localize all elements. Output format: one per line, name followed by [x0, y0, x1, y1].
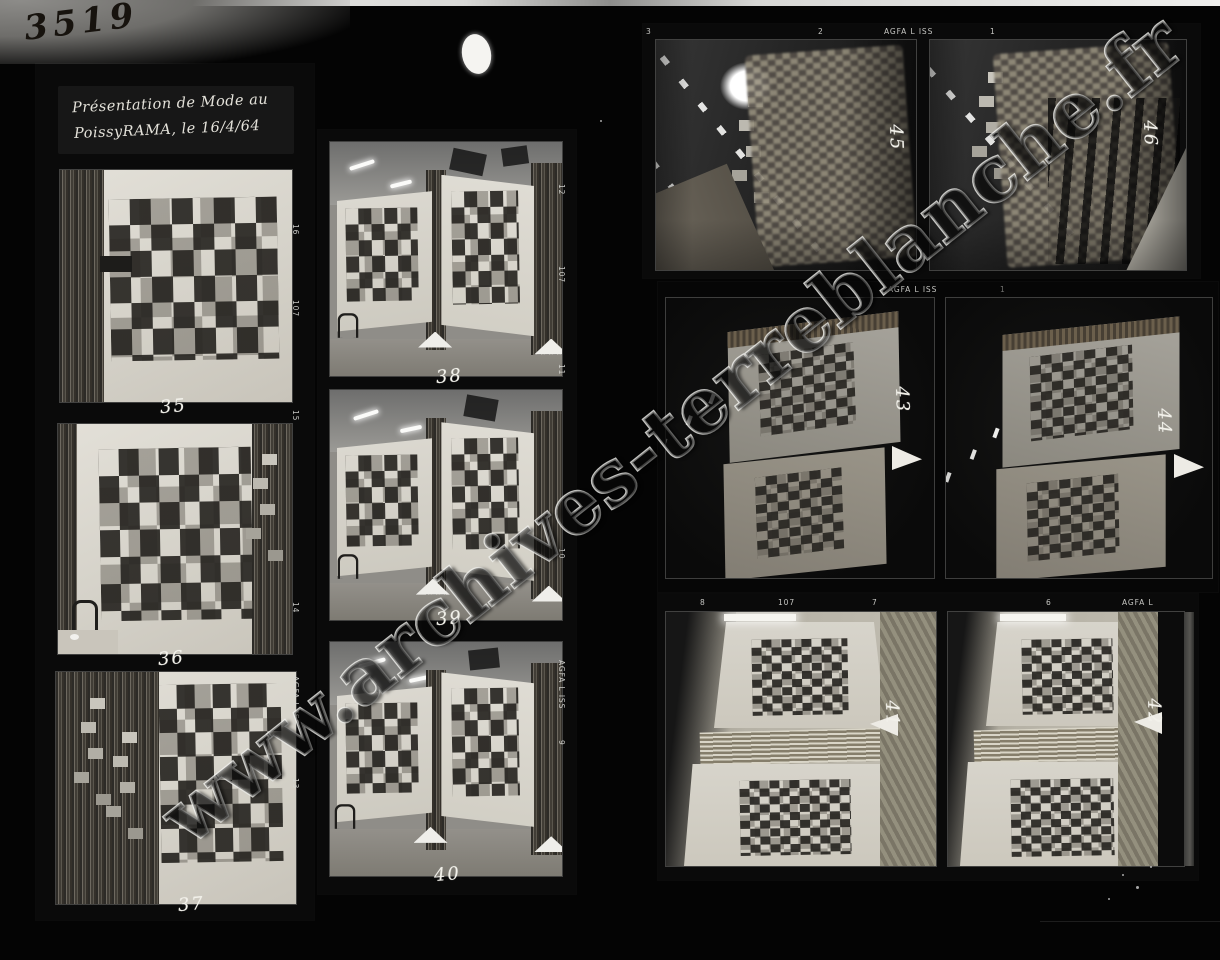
- film-edge-bar: [1184, 612, 1194, 866]
- frame-45: [656, 40, 916, 270]
- curtain: [531, 411, 562, 600]
- carpet: [880, 612, 936, 866]
- edge-marking: 107: [292, 300, 300, 317]
- dust-speck: [1122, 874, 1124, 876]
- pinned-photos: [122, 732, 137, 743]
- frame-37-number: 37: [177, 893, 206, 916]
- photo-cluster: [346, 207, 420, 301]
- frame-44: [946, 298, 1212, 578]
- edge-marking: 15: [292, 410, 300, 421]
- panel-top-bar: [728, 311, 899, 348]
- display-panel: [1002, 316, 1179, 467]
- chair-silhouette: [335, 804, 356, 829]
- cup: [70, 634, 79, 640]
- edge-marking: AGFA L ISS: [884, 28, 933, 36]
- display-panel: [723, 447, 886, 578]
- pinned-photos: [262, 454, 277, 465]
- panel-foot: [1174, 454, 1204, 478]
- edge-marking: 7: [872, 599, 878, 607]
- caption-line-1: Présentation de Mode au: [72, 92, 269, 117]
- pinned-photos: [90, 698, 105, 709]
- frame-41-number: 41: [881, 700, 903, 728]
- lighting-truss: [501, 145, 529, 166]
- panel-foot: [892, 446, 922, 470]
- edge-marking: AGFA L ISS: [292, 676, 300, 725]
- edge-marking: 107: [778, 599, 795, 607]
- edge-marking: 12: [558, 184, 566, 195]
- frame-46: [930, 40, 1186, 270]
- frame-36: [58, 424, 292, 654]
- frame-42-number: 42: [1143, 698, 1165, 726]
- lighting-truss: [468, 648, 500, 671]
- exhibit-panel-right: [441, 175, 534, 336]
- frame-38-number: 38: [435, 365, 464, 388]
- frame-39: [330, 390, 562, 620]
- caption-card: Présentation de Mode au PoissyRAMA, le 1…: [58, 86, 294, 154]
- table-corner: [58, 630, 118, 654]
- frame-43-number: 43: [891, 386, 913, 414]
- edge-marking: AGFA L: [1122, 599, 1154, 607]
- frame-40-number: 40: [433, 863, 462, 886]
- display-panel: [684, 764, 898, 866]
- light-dashes: [708, 394, 715, 405]
- edge-marking: 1: [1000, 286, 1006, 294]
- photo-cluster: [1021, 638, 1113, 714]
- edge-marking: 10: [558, 548, 566, 559]
- edge-marking: 14: [292, 602, 300, 613]
- photo-cluster: [452, 687, 521, 796]
- display-panel: [728, 311, 901, 463]
- frame-45-number: 45: [885, 124, 907, 152]
- photo-cluster: [1030, 344, 1134, 441]
- dust-speck: [1108, 898, 1110, 900]
- edge-marking: 1: [990, 28, 996, 36]
- carpet: [1118, 612, 1160, 866]
- frame-41: [666, 612, 936, 866]
- edge-marking: 107: [558, 266, 566, 283]
- photo-cluster: [758, 342, 856, 436]
- photo-cluster: [755, 467, 845, 559]
- photo-cluster: [99, 447, 254, 622]
- exhibit-panel-left: [337, 686, 432, 822]
- chair-silhouette: [72, 600, 98, 631]
- exhibit-panel-right: [441, 672, 534, 826]
- ceiling-light: [724, 614, 796, 621]
- curtain: [60, 170, 104, 402]
- photo-cluster: [109, 197, 280, 362]
- edge-marking: 3: [646, 28, 652, 36]
- photo-cluster: [452, 190, 521, 304]
- scratch-line: [1040, 921, 1220, 922]
- dust-speck: [600, 120, 602, 122]
- hole-punch: [459, 32, 495, 76]
- ceiling-light: [1000, 614, 1066, 621]
- edge-marking: 2: [818, 28, 824, 36]
- edge-marking: 8: [700, 599, 706, 607]
- edge-marking: AGFA L ISS: [558, 660, 566, 709]
- frame-43: [666, 298, 934, 578]
- photo-cluster: [346, 702, 420, 793]
- panel-top-bar: [1002, 316, 1179, 351]
- edge-marking: 11: [558, 364, 566, 375]
- frame-46-number: 46: [1139, 120, 1161, 148]
- frame-44-number: 44: [1153, 408, 1175, 436]
- chair-silhouette: [337, 554, 358, 579]
- edge-marking: 16: [292, 224, 300, 235]
- wall-sign: [100, 256, 132, 272]
- frame-38: [330, 142, 562, 376]
- panel-stack: [700, 727, 899, 765]
- dust-speck: [1136, 886, 1139, 889]
- frame-42: [948, 612, 1184, 866]
- shading: [656, 40, 916, 270]
- exhibit-panel-right: [441, 422, 534, 581]
- shading: [930, 40, 1186, 270]
- film-dark-band: [1158, 612, 1184, 866]
- frame-36-number: 36: [157, 647, 186, 670]
- photo-cluster: [158, 683, 283, 863]
- frame-39-number: 39: [435, 607, 464, 630]
- chair-silhouette: [337, 314, 358, 339]
- photo-cluster: [751, 638, 849, 716]
- edge-marking: 6: [1046, 599, 1052, 607]
- photo-cluster: [452, 437, 521, 549]
- frame-35-number: 35: [159, 395, 188, 418]
- photo-cluster: [346, 454, 420, 546]
- edge-marking: AGFA L ISS: [888, 286, 937, 294]
- frame-37: [56, 672, 296, 904]
- dust-speck: [1150, 866, 1152, 868]
- light-dashes: [992, 428, 999, 439]
- photo-cluster: [1026, 474, 1119, 562]
- display-panel: [996, 454, 1165, 578]
- frame-40: [330, 642, 562, 876]
- contact-sheet: 3519 Présentation de Mode au PoissyRAMA,…: [0, 0, 1220, 960]
- edge-marking: 9: [558, 740, 566, 746]
- display-panel: [714, 622, 886, 728]
- edge-marking: 13: [292, 778, 300, 789]
- photo-cluster: [739, 779, 852, 856]
- exhibit-panel-left: [337, 191, 432, 331]
- photo-cluster: [1011, 778, 1115, 857]
- curtain: [56, 672, 159, 904]
- frame-35: [60, 170, 292, 402]
- caption-line-2: PoissyRAMA, le 16/4/64: [74, 118, 261, 142]
